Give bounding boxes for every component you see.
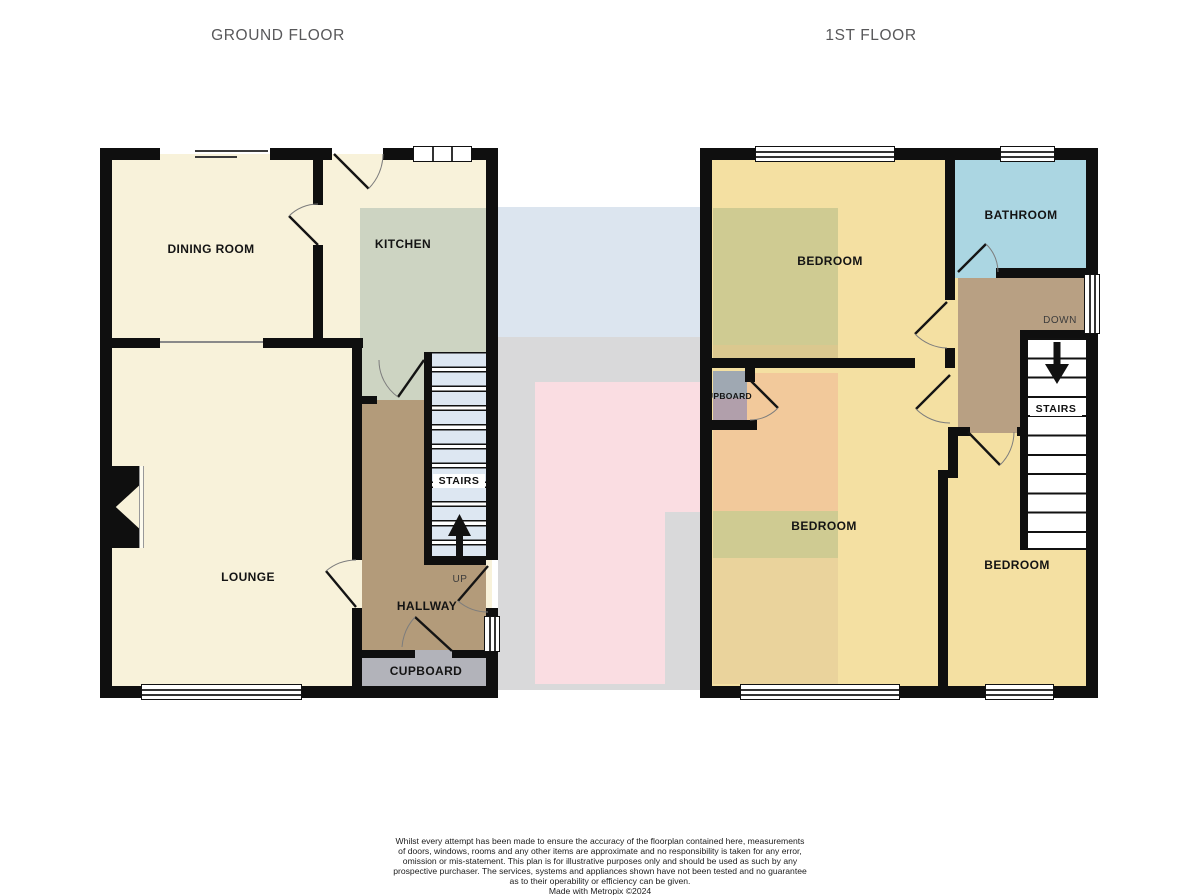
window-mullion	[741, 694, 899, 696]
dining-room-label: DINING ROOM	[146, 242, 276, 256]
ground-stairs	[432, 352, 486, 563]
wall-segment	[313, 154, 323, 205]
window	[413, 146, 472, 162]
wall-segment	[424, 556, 486, 565]
first-cupboard-label: CUPBOARD	[710, 391, 752, 403]
wall-segment	[452, 650, 486, 658]
hallway-label: HALLWAY	[384, 599, 470, 613]
window-line	[195, 156, 237, 158]
wall-segment	[313, 245, 323, 348]
wall-segment	[362, 396, 377, 404]
window	[141, 684, 302, 700]
disclaimer-line: Whilst every attempt has been made to en…	[350, 836, 850, 846]
first-floor-title: 1ST FLOOR	[796, 27, 946, 45]
window-line	[195, 150, 268, 152]
wall-segment	[100, 148, 112, 698]
ground-stairs-label: STAIRS	[433, 474, 485, 488]
first-cupboard-label-text: CUPBOARD	[710, 391, 752, 401]
wall-segment	[263, 338, 363, 348]
window-mullion	[1001, 156, 1054, 158]
ghost-block-pink	[535, 512, 665, 684]
window	[985, 684, 1054, 700]
window	[484, 616, 500, 652]
window	[755, 146, 895, 162]
disclaimer: Whilst every attempt has been made to en…	[350, 836, 850, 895]
window-mullion	[142, 689, 301, 691]
up-label: UP	[447, 574, 473, 585]
landing-fill	[958, 332, 1028, 433]
archway-line	[160, 341, 263, 343]
disclaimer-line: prospective purchaser. The services, sys…	[350, 866, 850, 876]
wall-segment	[700, 686, 742, 698]
wall-segment	[948, 358, 955, 368]
kitchen-label: KITCHEN	[358, 237, 448, 251]
window-mullion	[756, 151, 894, 153]
wall-segment	[898, 686, 987, 698]
wall-segment	[424, 352, 432, 563]
ghost-block-pink	[535, 382, 700, 512]
metropix-credit: Made with Metropix ©2024	[350, 886, 850, 895]
wall-segment	[383, 148, 415, 160]
window-mullion	[142, 694, 301, 696]
wall-segment	[352, 348, 362, 560]
wall-segment	[996, 268, 1086, 278]
wall-segment	[1086, 332, 1098, 698]
window	[1084, 274, 1100, 334]
wall-segment	[938, 470, 958, 478]
wall-segment	[1020, 330, 1086, 338]
bay-window-glass	[139, 466, 144, 548]
window-mullion	[1089, 275, 1091, 333]
lounge-label: LOUNGE	[198, 570, 298, 584]
window-mullion	[986, 694, 1053, 696]
ground-floor-title: GROUND FLOOR	[203, 27, 353, 45]
wall-segment	[300, 686, 498, 698]
window	[740, 684, 900, 700]
wall-segment	[100, 338, 160, 348]
floorplan-page: GROUND FLOOR 1ST FLOOR	[0, 0, 1200, 895]
wall-segment	[1017, 427, 1028, 436]
hallway-fill	[362, 400, 424, 652]
wall-segment	[712, 358, 915, 368]
bathroom-label: BATHROOM	[971, 208, 1071, 222]
window-mullion	[986, 689, 1053, 691]
window-mullion	[756, 156, 894, 158]
wall-segment	[745, 368, 755, 382]
first-stairs-label: STAIRS	[1030, 402, 1082, 416]
window-mullion	[741, 689, 899, 691]
disclaimer-line: of doors, windows, rooms and any other i…	[350, 846, 850, 856]
ground-cupboard-label: CUPBOARD	[380, 664, 472, 678]
window-mullion	[451, 147, 453, 161]
wall-segment	[1020, 332, 1028, 550]
bedroom1-zone-fill	[713, 345, 838, 358]
window-mullion	[494, 617, 496, 651]
bedroom1-label: BEDROOM	[780, 254, 880, 268]
disclaimer-line: as to their operability or efficiency ca…	[350, 876, 850, 886]
wall-segment	[100, 686, 143, 698]
bedroom1-zone-fill	[713, 208, 838, 345]
ghost-block-blue	[498, 207, 700, 337]
window-mullion	[1001, 151, 1054, 153]
wall-segment	[1052, 686, 1098, 698]
wall-segment	[1086, 148, 1098, 276]
window-mullion	[1094, 275, 1096, 333]
window-mullion	[489, 617, 491, 651]
bedroom3-label: BEDROOM	[967, 558, 1067, 572]
wall-segment	[700, 148, 712, 698]
bedroom2-label: BEDROOM	[774, 519, 874, 533]
disclaimer-line: omission or mis-statement. This plan is …	[350, 856, 850, 866]
wall-segment	[362, 650, 415, 658]
window	[1000, 146, 1055, 162]
wall-segment	[938, 478, 948, 686]
down-label: DOWN	[1036, 315, 1084, 326]
bedroom2-zone-fill	[713, 558, 838, 684]
first-stairs	[1028, 338, 1086, 550]
wall-segment	[712, 420, 757, 430]
wall-segment	[945, 154, 955, 300]
wall-segment	[486, 148, 498, 560]
window-mullion	[432, 147, 434, 161]
wall-segment	[352, 608, 362, 698]
